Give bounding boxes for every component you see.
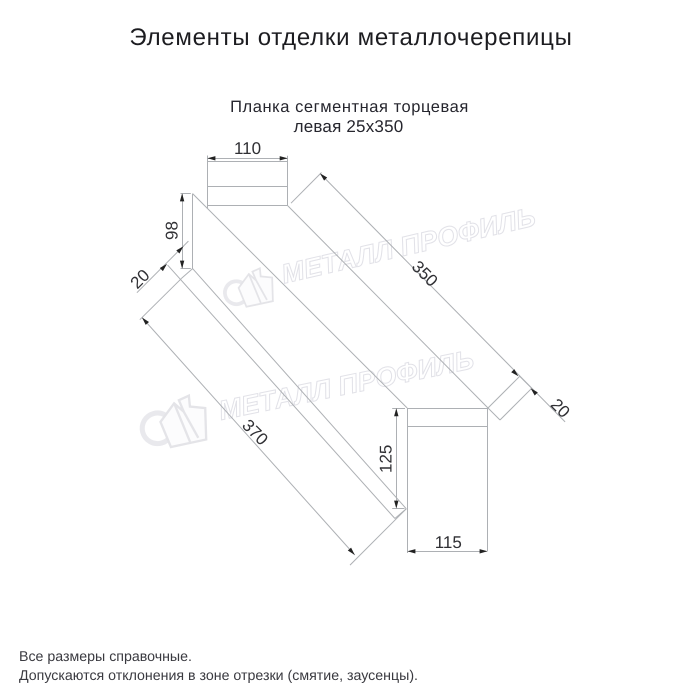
svg-text:125: 125 [376,445,395,473]
svg-text:98: 98 [162,221,181,240]
svg-text:350: 350 [408,257,441,290]
svg-text:110: 110 [234,139,261,158]
svg-text:115: 115 [435,533,462,552]
svg-text:20: 20 [127,266,154,293]
svg-text:МЕТАЛЛ ПРОФИЛЬ: МЕТАЛЛ ПРОФИЛЬ [279,202,539,290]
svg-text:20: 20 [547,395,574,422]
